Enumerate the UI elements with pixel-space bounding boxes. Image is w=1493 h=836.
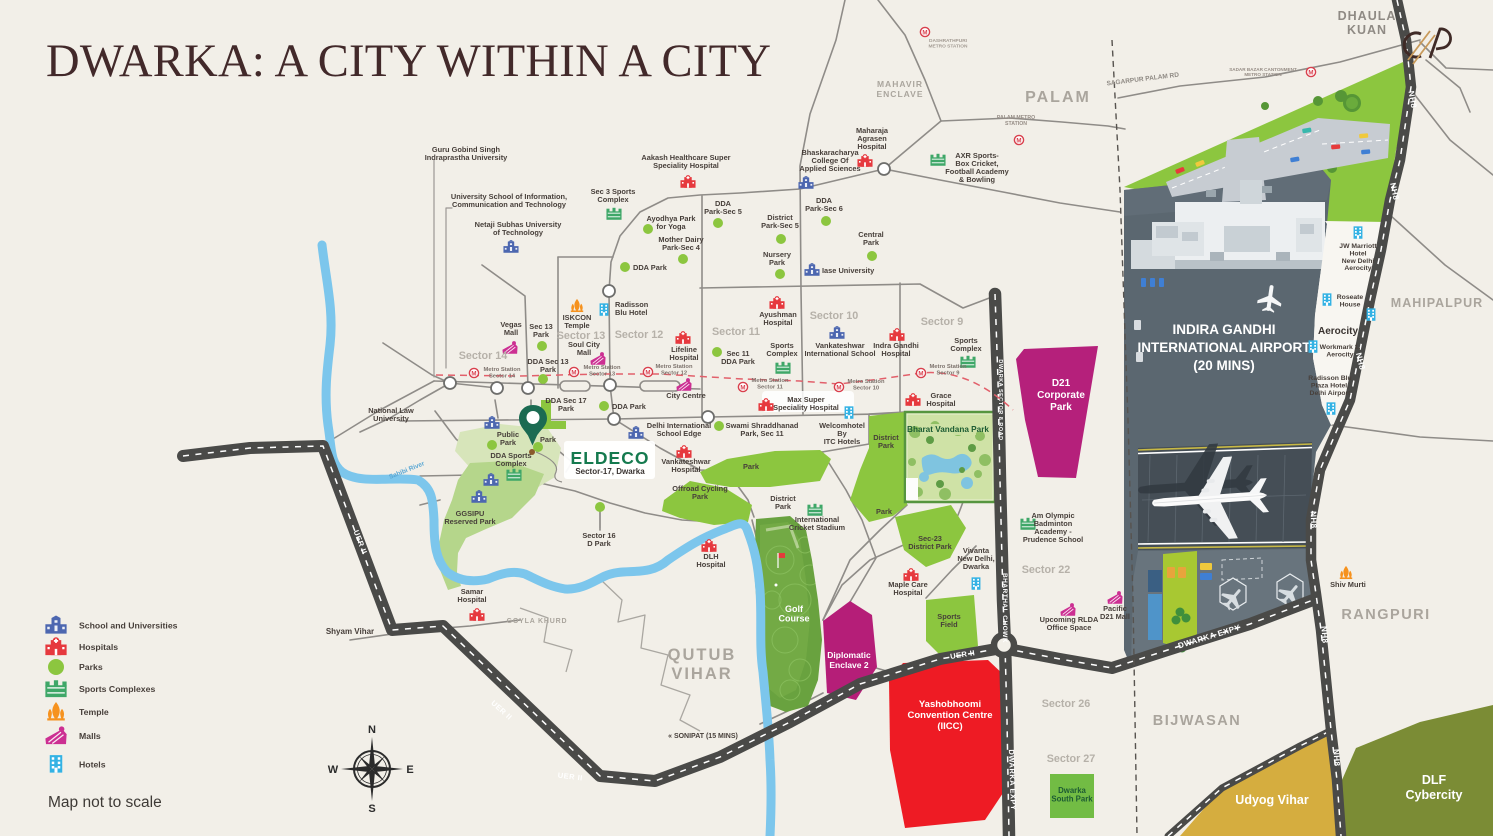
svg-text:University: University: [373, 414, 410, 423]
svg-text:Park: Park: [1050, 402, 1072, 413]
svg-text:M: M: [1308, 69, 1313, 76]
svg-text:Parks: Parks: [79, 662, 103, 672]
svg-text:DWARKA SECTOR 8 ROAD: DWARKA SECTOR 8 ROAD: [997, 359, 1003, 440]
svg-text:JW Marriott: JW Marriott: [1339, 243, 1377, 250]
svg-text:Hospital: Hospital: [669, 353, 698, 362]
svg-text:Sector 22: Sector 22: [1022, 564, 1071, 576]
svg-text:Communication and Technology: Communication and Technology: [452, 200, 567, 209]
svg-text:Park: Park: [558, 404, 575, 413]
svg-text:Map not to scale: Map not to scale: [48, 794, 162, 811]
svg-text:Hotels: Hotels: [79, 760, 106, 770]
svg-text:GOYLA KHURD: GOYLA KHURD: [507, 618, 568, 625]
svg-text:Cricket Stadium: Cricket Stadium: [789, 523, 846, 532]
svg-text:M: M: [918, 370, 923, 377]
svg-text:S: S: [368, 803, 375, 815]
svg-text:DASHRATHPURI: DASHRATHPURI: [929, 38, 968, 44]
svg-text:DHAULA: DHAULA: [1338, 9, 1397, 23]
svg-text:Sector 11: Sector 11: [712, 326, 760, 338]
svg-text:Sector 13: Sector 13: [557, 330, 606, 342]
svg-text:D Park: D Park: [587, 539, 611, 548]
svg-text:INTERNATIONAL AIRPORT: INTERNATIONAL AIRPORT: [1138, 340, 1312, 355]
svg-text:Enclave 2: Enclave 2: [829, 660, 868, 670]
svg-text:House: House: [1340, 301, 1361, 308]
svg-text:Metro Station: Metro Station: [655, 364, 692, 370]
svg-text:Aerocity: Aerocity: [1318, 326, 1358, 337]
svg-text:Hospital: Hospital: [671, 465, 700, 474]
svg-text:Cybercity: Cybercity: [1406, 788, 1463, 802]
svg-text:Sector 9: Sector 9: [937, 370, 961, 376]
svg-text:International School: International School: [804, 349, 875, 358]
svg-text:Park-Sec 5: Park-Sec 5: [761, 221, 799, 230]
svg-text:Complex: Complex: [597, 195, 629, 204]
svg-text:District Park: District Park: [908, 542, 952, 551]
svg-text:BHARTHAL CHOWK: BHARTHAL CHOWK: [1001, 573, 1008, 643]
svg-text:Bharat Vandana Park: Bharat Vandana Park: [907, 425, 989, 434]
svg-text:KUAN: KUAN: [1347, 23, 1387, 37]
svg-text:Sector-17, Dwarka: Sector-17, Dwarka: [575, 467, 645, 476]
svg-text:Complex: Complex: [950, 344, 982, 353]
svg-text:Park-Sec 4: Park-Sec 4: [662, 243, 701, 252]
svg-text:MAHIPALPUR: MAHIPALPUR: [1391, 296, 1483, 310]
svg-text:Park: Park: [692, 492, 709, 501]
svg-text:Dwarka: Dwarka: [963, 562, 990, 571]
svg-text:Hospital: Hospital: [457, 595, 486, 604]
svg-text:Prudence School: Prudence School: [1023, 535, 1083, 544]
svg-text:City Centre: City Centre: [666, 391, 705, 400]
svg-text:E: E: [406, 764, 413, 776]
svg-text:Temple: Temple: [564, 321, 589, 330]
svg-text:DDA Park: DDA Park: [721, 357, 756, 366]
svg-text:Mall: Mall: [504, 328, 518, 337]
svg-text:Sector 9: Sector 9: [921, 316, 964, 328]
svg-text:ITC Hotels: ITC Hotels: [824, 437, 861, 446]
svg-text:Sector 10: Sector 10: [810, 310, 859, 322]
svg-text:Sector 26: Sector 26: [1042, 698, 1091, 710]
svg-text:Park: Park: [878, 441, 895, 450]
svg-text:Complex: Complex: [766, 349, 798, 358]
svg-text:Reserved Park: Reserved Park: [444, 517, 496, 526]
svg-text:Park: Park: [775, 502, 792, 511]
svg-text:NH8: NH8: [1309, 511, 1319, 529]
svg-text:Field: Field: [940, 620, 958, 629]
svg-text:Workmark 1,: Workmark 1,: [1320, 344, 1361, 351]
svg-text:Hospital: Hospital: [893, 588, 922, 597]
svg-text:VIHAR: VIHAR: [671, 665, 732, 683]
svg-text:M: M: [740, 384, 745, 391]
svg-text:Park-Sec 5: Park-Sec 5: [704, 207, 742, 216]
svg-text:School and Universities: School and Universities: [79, 621, 178, 631]
svg-text:Park: Park: [743, 462, 760, 471]
svg-text:Course: Course: [778, 614, 809, 624]
svg-text:Diplomatic: Diplomatic: [827, 650, 871, 660]
svg-text:STATION: STATION: [1005, 121, 1027, 127]
svg-text:Park: Park: [540, 435, 557, 444]
svg-text:M: M: [1016, 137, 1021, 144]
svg-text:Sports Complexes: Sports Complexes: [79, 684, 155, 694]
svg-text:Sector 14: Sector 14: [459, 350, 508, 362]
svg-text:Udyog Vihar: Udyog Vihar: [1235, 793, 1309, 807]
svg-text:NH8: NH8: [1331, 749, 1341, 767]
svg-text:Convention Centre: Convention Centre: [908, 710, 993, 721]
svg-text:D21: D21: [1052, 378, 1071, 389]
svg-text:METRO STATION: METRO STATION: [929, 43, 969, 49]
svg-text:Shiv Murti: Shiv Murti: [1330, 580, 1366, 589]
svg-text:Sector 12: Sector 12: [615, 329, 664, 341]
svg-text:of Technology: of Technology: [493, 228, 544, 237]
svg-text:& Bowling: & Bowling: [959, 175, 996, 184]
svg-text:Blu Hotel: Blu Hotel: [615, 308, 647, 317]
svg-text:(20 MINS): (20 MINS): [1193, 358, 1255, 373]
svg-text:METRO STATION: METRO STATION: [1244, 72, 1282, 77]
svg-text:Corporate: Corporate: [1037, 390, 1085, 401]
svg-text:QUTUB: QUTUB: [668, 646, 737, 664]
svg-text:Temple: Temple: [79, 707, 109, 717]
svg-text:Iase University: Iase University: [822, 266, 875, 275]
svg-text:RANGPURI: RANGPURI: [1341, 607, 1430, 623]
svg-text:W: W: [328, 764, 339, 776]
svg-text:Hospital: Hospital: [926, 399, 955, 408]
svg-text:Hotel: Hotel: [1350, 250, 1367, 257]
svg-text:Sector 12: Sector 12: [661, 370, 687, 376]
svg-text:Metro Station: Metro Station: [583, 365, 620, 371]
svg-text:NH8: NH8: [1319, 626, 1329, 644]
svg-text:Hospital: Hospital: [881, 349, 910, 358]
svg-text:Hospitals: Hospitals: [79, 642, 118, 652]
svg-text:Office Space: Office Space: [1047, 623, 1092, 632]
svg-text:Sector 27: Sector 27: [1047, 753, 1096, 765]
svg-text:M: M: [922, 29, 927, 36]
svg-text:M: M: [471, 370, 476, 377]
svg-text:Plaza Hotel,: Plaza Hotel,: [1311, 382, 1349, 389]
svg-text:South Park: South Park: [1051, 794, 1093, 803]
svg-text:Complex: Complex: [495, 459, 527, 468]
svg-text:Speciality Hospital: Speciality Hospital: [773, 403, 839, 412]
svg-text:M: M: [645, 369, 650, 376]
svg-text:Hospital: Hospital: [696, 560, 725, 569]
svg-text:« SONIPAT (15 MINS): « SONIPAT (15 MINS): [668, 733, 738, 740]
svg-text:Park: Park: [533, 330, 550, 339]
svg-text:Speciality Hospital: Speciality Hospital: [653, 161, 719, 170]
svg-text:INDIRA GANDHI: INDIRA GANDHI: [1173, 322, 1276, 337]
svg-text:D21 Mall: D21 Mall: [1100, 612, 1130, 621]
svg-text:Park: Park: [500, 438, 517, 447]
svg-text:Shyam Vihar: Shyam Vihar: [326, 627, 374, 636]
svg-text:Park: Park: [876, 507, 893, 516]
svg-text:School Edge: School Edge: [657, 429, 702, 438]
svg-text:Park: Park: [863, 238, 880, 247]
svg-text:for Yoga: for Yoga: [656, 222, 686, 231]
svg-text:Sector 10: Sector 10: [853, 385, 879, 391]
svg-text:PALAM: PALAM: [1025, 89, 1091, 106]
svg-text:Mall: Mall: [577, 348, 591, 357]
svg-text:Metro Station: Metro Station: [847, 379, 884, 385]
svg-text:(IICC): (IICC): [937, 721, 962, 732]
svg-text:Sector 13: Sector 13: [589, 371, 616, 377]
svg-text:ELDECO: ELDECO: [571, 448, 650, 468]
svg-text:Delhi Airport: Delhi Airport: [1310, 390, 1352, 397]
svg-text:Golf: Golf: [785, 604, 804, 614]
svg-text:Applied Sciences: Applied Sciences: [799, 164, 860, 173]
svg-text:Park: Park: [769, 258, 786, 267]
svg-text:Park, Sec 11: Park, Sec 11: [740, 429, 783, 438]
svg-text:Hospital: Hospital: [763, 318, 792, 327]
svg-text:Metro Station: Metro Station: [929, 364, 966, 370]
svg-text:Sector 11: Sector 11: [757, 384, 784, 390]
svg-text:Sector 14: Sector 14: [489, 373, 516, 379]
svg-text:Hospital: Hospital: [857, 142, 886, 151]
svg-text:M: M: [571, 369, 576, 376]
svg-text:DDA Park: DDA Park: [612, 402, 647, 411]
svg-text:MAHAVIR: MAHAVIR: [877, 79, 923, 89]
svg-text:Yashobhoomi: Yashobhoomi: [919, 699, 981, 710]
svg-text:Aerocity: Aerocity: [1326, 351, 1353, 358]
svg-text:Malls: Malls: [79, 731, 101, 741]
svg-text:BIJWASAN: BIJWASAN: [1153, 713, 1242, 729]
svg-text:Park-Sec 6: Park-Sec 6: [805, 204, 843, 213]
svg-text:DLF: DLF: [1422, 773, 1447, 787]
svg-text:DWARKA: A CITY WITHIN A CITY: DWARKA: A CITY WITHIN A CITY: [46, 36, 771, 87]
svg-text:Metro Station: Metro Station: [483, 367, 520, 373]
svg-text:Metro Station: Metro Station: [751, 378, 788, 384]
svg-text:New Delhi: New Delhi: [1342, 258, 1375, 265]
svg-text:Radisson Blu: Radisson Blu: [1308, 375, 1351, 382]
svg-text:Roseate: Roseate: [1337, 294, 1364, 301]
svg-text:Park: Park: [540, 365, 557, 374]
svg-text:DDA Park: DDA Park: [633, 263, 668, 272]
svg-text:M: M: [836, 384, 841, 391]
svg-text:N: N: [368, 724, 376, 736]
svg-text:Indraprastha University: Indraprastha University: [425, 153, 508, 162]
svg-text:ENCLAVE: ENCLAVE: [877, 89, 924, 99]
svg-text:Aerocity: Aerocity: [1344, 265, 1371, 272]
